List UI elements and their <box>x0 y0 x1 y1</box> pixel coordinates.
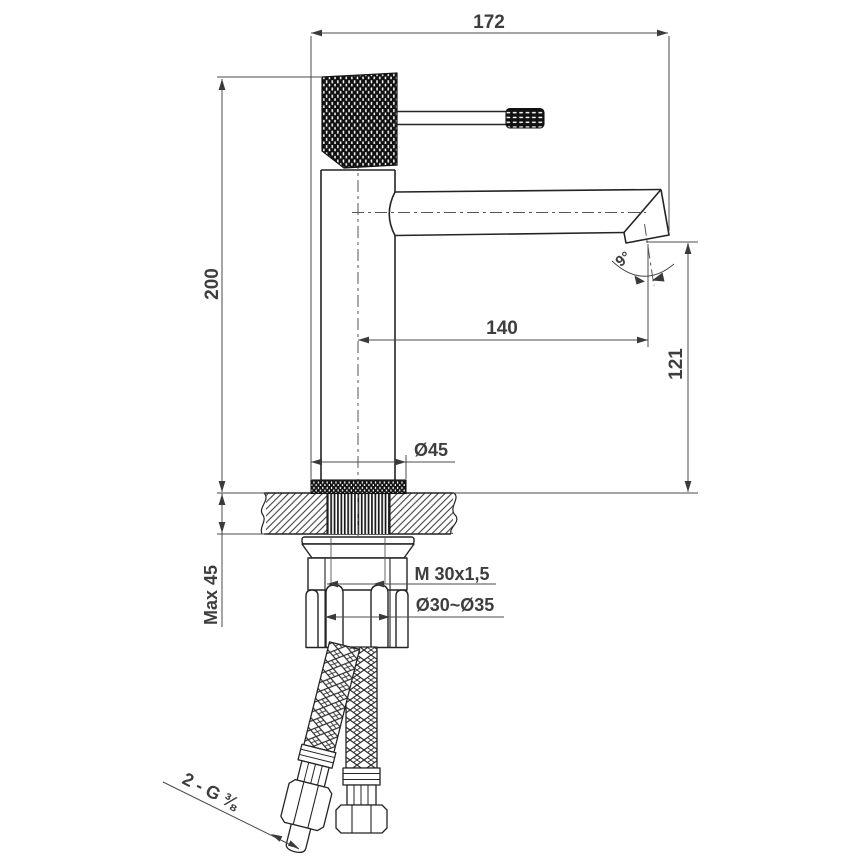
countertop-hatch-left <box>266 493 327 534</box>
handle-knurled-knob <box>322 73 397 168</box>
bracket-upper-box <box>308 558 407 590</box>
dim-label-mounting-hole: Ø30~Ø35 <box>416 595 495 615</box>
technical-drawing-canvas: 172 200 140 121 9° Ø45 Max 45 M 30x1,5 Ø… <box>0 0 868 868</box>
faucet-technical-drawing: 172 200 140 121 9° Ø45 Max 45 M 30x1,5 Ø… <box>0 0 868 868</box>
dim-label-hose-connections: 2 - G ⅜ <box>179 769 242 815</box>
dim-label-max-thickness: Max 45 <box>201 565 221 625</box>
countertop-break-line-left <box>261 493 266 534</box>
lever-knurled-grip <box>506 109 544 129</box>
dim-label-total-height: 200 <box>202 268 223 300</box>
bracket-tab-left <box>306 590 318 648</box>
dim-label-spout-reach: 140 <box>486 318 518 339</box>
bracket-tab-right <box>396 590 408 648</box>
lever-rod-fill <box>395 111 506 125</box>
dim-label-overall-width: 172 <box>473 12 505 33</box>
hose-thread-tip-left <box>285 824 311 854</box>
backnut-and-mounting-bracket <box>302 536 414 648</box>
hose-collar-right <box>343 768 380 785</box>
dim-label-base-diameter: Ø45 <box>414 440 448 460</box>
dimension-max45 <box>217 493 266 627</box>
washer-plate <box>302 537 414 544</box>
dim-label-fixing-thread: M 30x1,5 <box>414 564 489 584</box>
hose-hex-nut-right <box>336 805 387 833</box>
flange-cone <box>302 544 414 558</box>
dimension-200 <box>217 77 321 492</box>
hose-hex-nut-left <box>280 778 333 831</box>
dim-label-outlet-angle: 9° <box>612 248 634 270</box>
countertop-hatch-right <box>390 493 453 534</box>
dim-label-outlet-height: 121 <box>666 348 687 380</box>
base-knurled-ring <box>311 480 406 494</box>
